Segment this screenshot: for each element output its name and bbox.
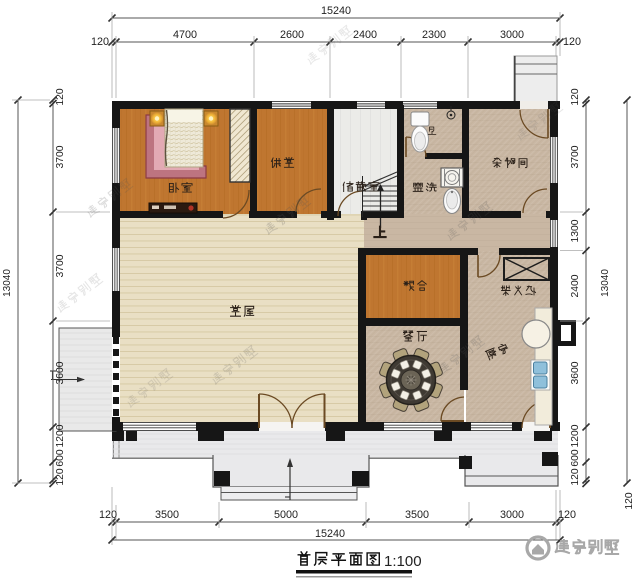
svg-text:1300: 1300 <box>570 219 581 242</box>
svg-text:120: 120 <box>570 468 581 485</box>
svg-text:3700: 3700 <box>55 145 66 168</box>
svg-text:3700: 3700 <box>55 254 66 277</box>
svg-text:120: 120 <box>624 492 635 509</box>
svg-text:120: 120 <box>55 468 66 485</box>
svg-text:4700: 4700 <box>173 29 197 41</box>
svg-text:600: 600 <box>570 449 581 466</box>
svg-text:1:100: 1:100 <box>384 553 422 570</box>
svg-text:120: 120 <box>99 509 117 521</box>
svg-text:2400: 2400 <box>353 29 377 41</box>
svg-text:15240: 15240 <box>315 528 345 540</box>
svg-text:13040: 13040 <box>2 269 13 297</box>
svg-text:120: 120 <box>570 88 581 105</box>
svg-text:3600: 3600 <box>55 361 66 384</box>
svg-text:1200: 1200 <box>570 424 581 447</box>
svg-text:120: 120 <box>91 36 109 48</box>
svg-text:3600: 3600 <box>570 361 581 384</box>
svg-text:600: 600 <box>55 449 66 466</box>
svg-text:120: 120 <box>558 509 576 521</box>
svg-text:3700: 3700 <box>570 145 581 168</box>
svg-text:120: 120 <box>563 36 581 48</box>
svg-text:2600: 2600 <box>280 29 304 41</box>
svg-text:5000: 5000 <box>274 509 298 521</box>
svg-text:3000: 3000 <box>500 29 524 41</box>
svg-text:13040: 13040 <box>600 269 611 297</box>
svg-text:3000: 3000 <box>500 509 524 521</box>
svg-text:120: 120 <box>55 88 66 105</box>
svg-text:3500: 3500 <box>405 509 429 521</box>
svg-text:1200: 1200 <box>55 424 66 447</box>
svg-text:15240: 15240 <box>321 5 351 17</box>
svg-text:2300: 2300 <box>422 29 446 41</box>
svg-text:2400: 2400 <box>570 274 581 297</box>
svg-text:3500: 3500 <box>155 509 179 521</box>
